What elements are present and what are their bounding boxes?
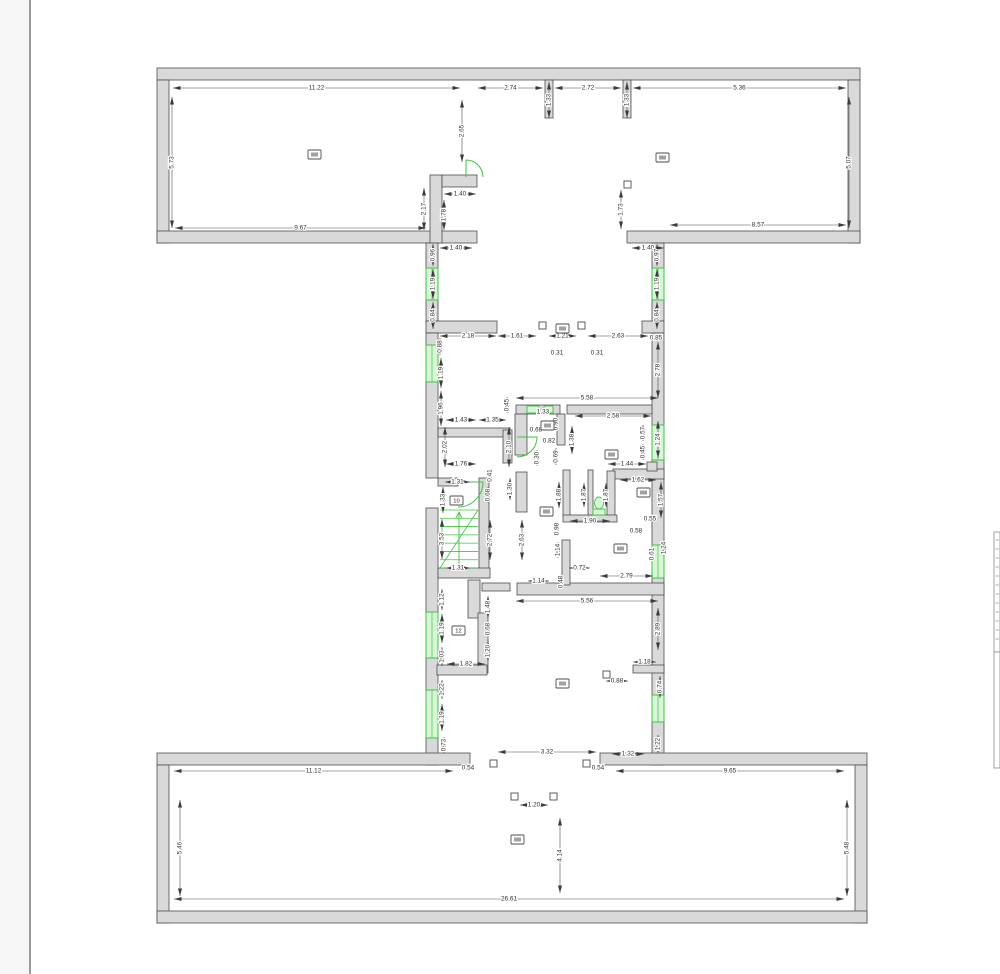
dimension-label: 0.31 — [551, 350, 564, 357]
column — [550, 793, 557, 800]
dimension-label: 5.58 — [581, 395, 594, 402]
wall — [627, 231, 860, 243]
wall — [563, 470, 570, 517]
dimension-label: 3.53 — [439, 532, 446, 545]
dimension-label: 1.82 — [460, 661, 473, 668]
dimension-label: 1.21 — [556, 333, 569, 340]
dimensions-layer: 11.222.741.332.721.335.365.735.072.659.6… — [169, 82, 853, 903]
dimension-label: 2.63 — [612, 333, 625, 340]
dimension-label: 1.87 — [581, 488, 588, 501]
wall — [633, 665, 664, 673]
dimension-label: 1.90 — [584, 518, 597, 525]
room-marker-glyph — [617, 547, 624, 551]
dimension-label: 5.36 — [733, 85, 746, 92]
wall — [600, 753, 867, 765]
dimension-label: 0.84 — [654, 309, 661, 322]
dimension-label: 1.20 — [485, 644, 492, 657]
wall — [438, 428, 510, 437]
dimension-label: 11.22 — [309, 85, 325, 92]
dimension-label: 2.02 — [442, 440, 449, 453]
wall — [426, 508, 438, 612]
floor-plan-page: 11.222.741.332.721.335.365.735.072.659.6… — [0, 0, 1000, 974]
page-margin — [0, 0, 29, 974]
dimension-label: 1.87 — [603, 488, 610, 501]
dimension-label: 2.65 — [459, 124, 466, 137]
dimension-label: 3.32 — [541, 749, 554, 756]
dimension-label: 0.61 — [649, 547, 656, 560]
wall — [426, 658, 438, 690]
dimension-label: 1.33 — [624, 93, 631, 106]
room-marker-glyph — [608, 453, 615, 457]
dimension-label: 26.61 — [501, 896, 517, 903]
dimension-label: 1.30 — [507, 482, 514, 495]
dimension-label: 1.03 — [439, 650, 446, 663]
dimension-label: 1.24 — [655, 433, 662, 446]
dimension-label: 1.40 — [454, 191, 467, 198]
dimension-label: 5.46 — [177, 841, 184, 854]
dimension-label: 1.62 — [632, 477, 645, 484]
dimension-label: 0.69 — [553, 450, 560, 463]
dimension-label: 1.78 — [441, 208, 448, 221]
dimension-label: 9.67 — [294, 225, 307, 232]
dimension-label: 1.19 — [439, 711, 446, 724]
dimension-label: 5.07 — [846, 156, 853, 169]
dimension-label: 1.24 — [661, 541, 668, 554]
dimension-label: 0.57 — [640, 426, 647, 439]
wall — [157, 765, 169, 923]
wall — [588, 470, 593, 517]
dimension-label: 0.31 — [591, 350, 604, 357]
dimension-label: 0.72 — [573, 565, 586, 572]
dimension-label: 0.45 — [504, 398, 511, 411]
dimension-label: 0.84 — [430, 309, 437, 322]
dimension-label: 0.73 — [441, 738, 448, 751]
room-marker-glyph — [559, 327, 566, 331]
dimension-label: 1.73 — [618, 203, 625, 216]
dimension-label: 2.74 — [504, 85, 517, 92]
dimension-label: 1.12 — [439, 593, 446, 606]
dimension-label: 2.79 — [620, 573, 633, 580]
dimension-label: 5.56 — [581, 598, 594, 605]
room-marker-glyph — [543, 510, 550, 514]
dimension-label: 1.57 — [658, 493, 665, 506]
room-marker-label: 12 — [455, 629, 461, 635]
dimension-label: 2.72 — [487, 533, 494, 546]
door-swing — [466, 160, 483, 177]
wall — [157, 68, 860, 80]
room-marker-label: 10 — [453, 499, 459, 505]
dimension-label: 1.31 — [451, 479, 464, 486]
dimension-label: 0.88 — [611, 678, 624, 685]
title-strip-box — [994, 652, 1000, 768]
wall — [517, 583, 664, 595]
dimension-label: 1.18 — [638, 659, 651, 666]
wall — [468, 580, 480, 618]
column — [624, 181, 631, 188]
dimension-label: 2.17 — [421, 202, 428, 215]
dimension-label: 9.65 — [724, 768, 737, 775]
dimension-label: 1.19 — [439, 622, 446, 635]
room-marker-glyph — [514, 838, 521, 842]
dimension-label: 2.89 — [655, 622, 662, 635]
wall — [482, 583, 510, 591]
wall — [442, 175, 477, 187]
dimension-label: 5.73 — [169, 156, 176, 169]
room-marker-glyph — [559, 682, 566, 686]
dimension-label: 1.19 — [654, 277, 661, 290]
dimension-label: 0.41 — [487, 469, 494, 482]
dimension-label: 1.14 — [532, 578, 545, 585]
dimension-label: 1.14 — [555, 543, 562, 556]
dimension-label: 2.78 — [655, 363, 662, 376]
dimension-label: 1.35 — [486, 417, 499, 424]
dimension-label: 1.44 — [621, 461, 634, 468]
column — [511, 793, 518, 800]
dimension-label: 1.31 — [452, 565, 465, 572]
wall — [426, 321, 497, 333]
dimension-label: 2.72 — [582, 85, 595, 92]
wall — [426, 382, 438, 478]
column — [539, 322, 546, 329]
column — [603, 671, 610, 678]
dimension-label: 0.98 — [554, 522, 561, 535]
dimension-label: 0.96 — [430, 248, 437, 261]
toilet-tank — [593, 509, 605, 515]
wall — [855, 765, 867, 923]
room-marker-glyph — [544, 424, 551, 428]
wall — [157, 80, 169, 243]
dimension-label: 1.22 — [439, 683, 446, 696]
dimension-label: 8.57 — [752, 222, 765, 229]
dimension-label: 0.97 — [654, 248, 661, 261]
dimension-label: 1.33 — [440, 493, 447, 506]
dimension-label: 0.74 — [657, 680, 664, 693]
dimension-label: 5.48 — [844, 841, 851, 854]
dimension-label: 1.22 — [655, 737, 662, 750]
column — [490, 760, 497, 767]
dimension-label: 0.45 — [640, 445, 647, 458]
dimension-label: 1.38 — [569, 433, 576, 446]
wall — [647, 462, 657, 471]
room-marker-glyph — [659, 156, 666, 160]
dimension-label: 0.55 — [644, 516, 657, 523]
dimension-label: 1.20 — [528, 802, 541, 809]
dimension-label: 1.96 — [438, 402, 445, 415]
column — [583, 760, 590, 767]
title-strip-box — [994, 532, 1000, 652]
room-marker-glyph — [311, 153, 318, 157]
dimension-label: 2.58 — [607, 413, 620, 420]
dimension-label: 1.19 — [438, 366, 445, 379]
dimension-label: 2.63 — [519, 533, 526, 546]
dimension-label: 0.68 — [485, 488, 492, 501]
wall — [516, 472, 527, 512]
dimension-label: 4.14 — [557, 849, 564, 862]
dimension-label: 1.76 — [455, 461, 468, 468]
dimension-label: 1.40 — [450, 245, 463, 252]
dimension-label: 2.10 — [506, 440, 513, 453]
dimension-label: 0.68 — [485, 622, 492, 635]
dimension-label: 0.88 — [437, 340, 444, 353]
dimension-label: 0.54 — [462, 765, 475, 772]
dimension-label: 0.58 — [630, 528, 643, 535]
dimension-label: 1.48 — [485, 600, 492, 613]
dimension-label: 1.43 — [455, 417, 468, 424]
dimension-label: 1.33 — [537, 409, 550, 416]
room-marker-glyph — [640, 491, 647, 495]
wall — [157, 231, 477, 243]
dimension-label: 1.88 — [556, 488, 563, 501]
wall — [642, 321, 664, 333]
dimension-label: 0.82 — [543, 438, 556, 445]
wall — [515, 414, 527, 455]
dimension-label: 11.12 — [306, 768, 322, 775]
dimension-label: 1.32 — [622, 751, 635, 758]
column — [578, 322, 585, 329]
floor-plan-drawing: 11.222.741.332.721.335.365.735.072.659.6… — [0, 0, 1000, 974]
dimension-label: 0.48 — [558, 575, 565, 588]
dimension-label: 0.30 — [534, 451, 541, 464]
dimension-label: 0.85 — [650, 335, 663, 342]
dimension-label: 0.54 — [592, 765, 605, 772]
dimension-label: 1.19 — [430, 277, 437, 290]
dimension-label: 2.18 — [462, 333, 475, 340]
dimension-label: 1.33 — [546, 93, 553, 106]
wall — [157, 753, 470, 765]
wall — [157, 911, 867, 923]
dimension-label: 1.61 — [511, 333, 524, 340]
